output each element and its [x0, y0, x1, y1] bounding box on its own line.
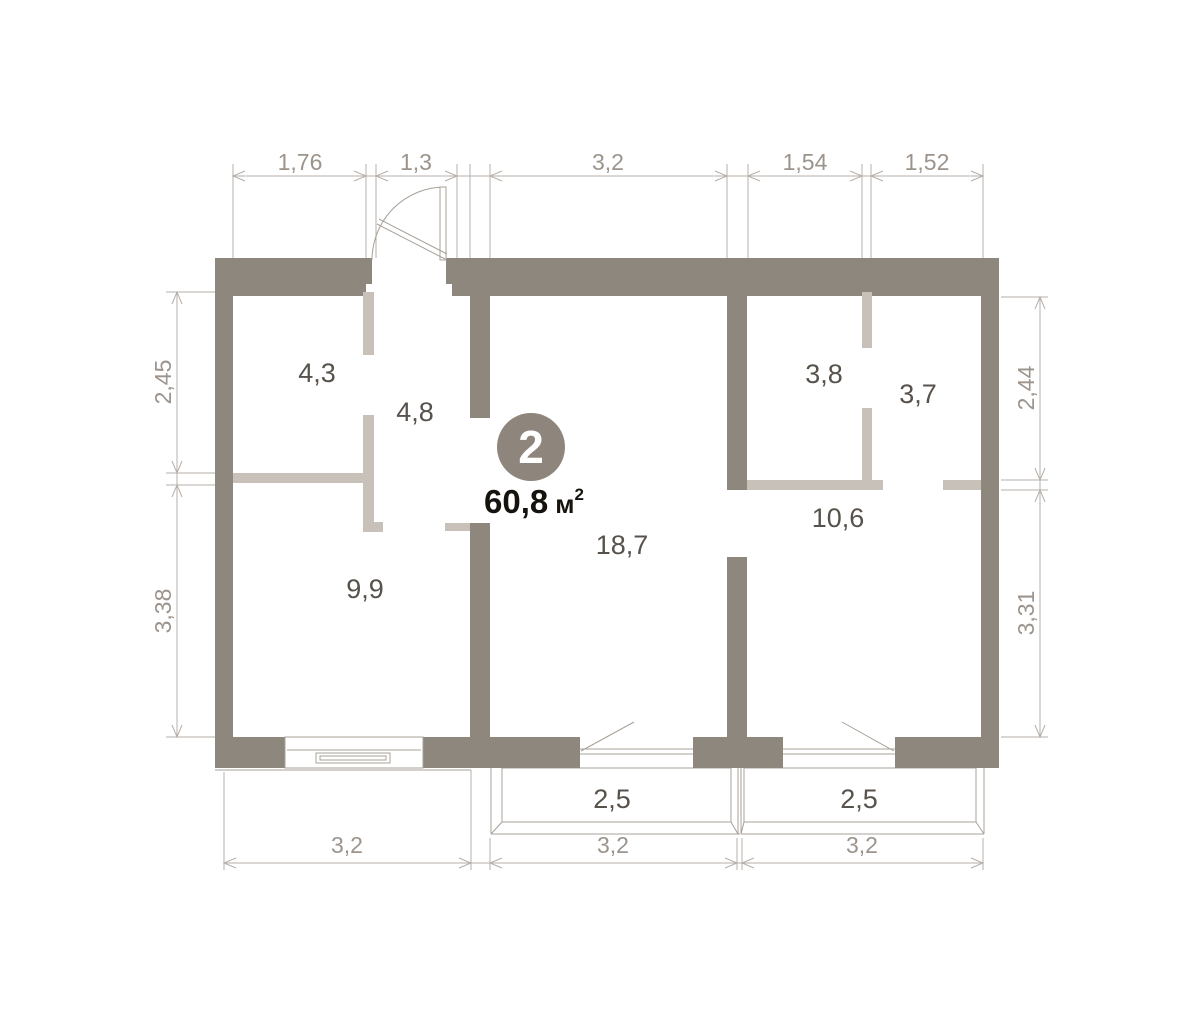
dimensions-top: 1,76 1,3 3,2 1,54 1,52	[233, 149, 983, 258]
wall-bottom-2	[423, 737, 580, 768]
dim-top-5: 1,52	[905, 149, 950, 175]
balcony-door-right	[783, 722, 895, 754]
partition-under-38	[747, 480, 883, 490]
dim-bottom-2: 3,2	[597, 832, 629, 858]
area-label-living-room: 18,7	[596, 530, 649, 560]
total-area-superscript: 2	[574, 485, 583, 504]
window-bottom-left	[285, 737, 423, 768]
partition-room-divider-left	[233, 473, 363, 483]
door-leaf-open	[440, 187, 446, 260]
area-label-bedroom-left: 9,9	[346, 574, 384, 604]
partition-closet-cap	[363, 522, 383, 532]
dim-top-3: 3,2	[592, 149, 624, 175]
wall-hall-living-upper	[470, 292, 490, 418]
partitions	[233, 292, 981, 532]
door-jamb-notch-right	[446, 284, 452, 296]
dimensions-left: 2,45 3,38	[150, 292, 215, 737]
floor-plan-page: 1,76 1,3 3,2 1,54 1,52 2,45 3,38 2,44 3,…	[0, 0, 1200, 1027]
wall-right	[981, 258, 999, 768]
dim-bottom-1: 3,2	[331, 832, 363, 858]
area-label-storage-left: 3,8	[805, 359, 843, 389]
partition-38-37-top	[862, 292, 872, 348]
dim-top-1: 1,76	[278, 149, 323, 175]
unit-badge: 2	[497, 413, 565, 481]
wall-left	[215, 258, 233, 768]
door-swing-arc	[372, 187, 445, 260]
area-label-storage-right: 3,7	[899, 379, 937, 409]
wall-bottom-4	[895, 737, 999, 768]
outer-walls	[215, 258, 999, 768]
dim-left-1: 2,45	[150, 360, 176, 405]
partition-closet-top	[363, 292, 374, 355]
wall-hall-living-lower	[470, 523, 490, 737]
wall-living-right-lower	[727, 557, 747, 768]
area-label-hallway: 4,8	[396, 397, 434, 427]
partition-under-37	[943, 480, 981, 490]
floor-plan-svg: 1,76 1,3 3,2 1,54 1,52 2,45 3,38 2,44 3,…	[0, 0, 1200, 1027]
partition-closet-bottom	[363, 415, 374, 532]
total-area-unit: м	[555, 489, 574, 519]
wall-living-right-upper	[727, 292, 747, 490]
dim-left-2: 3,38	[150, 589, 176, 634]
partition-stub-hall	[445, 523, 470, 531]
entrance-door	[372, 187, 447, 260]
area-label-balcony-left: 2,5	[593, 784, 631, 814]
dim-right-2: 3,31	[1013, 591, 1039, 636]
total-area-value: 60,8	[484, 483, 548, 520]
wall-top-left	[215, 258, 372, 296]
area-label-balcony-right: 2,5	[840, 784, 878, 814]
dim-top-4: 1,54	[783, 149, 828, 175]
total-area: 60,8м2	[484, 483, 584, 520]
wall-bottom-1	[215, 737, 285, 768]
dim-bottom-3: 3,2	[846, 832, 878, 858]
area-label-room-top-left: 4,3	[298, 358, 336, 388]
balcony-door-left	[580, 722, 693, 754]
dim-right-1: 2,44	[1013, 365, 1039, 410]
partition-38-37-bottom	[862, 408, 872, 490]
dim-top-2: 1,3	[400, 149, 432, 175]
wall-top-right	[446, 258, 999, 296]
area-label-bedroom-right: 10,6	[812, 503, 865, 533]
balcony-door-left-leaf	[581, 722, 634, 751]
dimensions-right: 2,44 3,31	[1001, 297, 1048, 737]
balcony-door-right-leaf	[842, 722, 894, 751]
unit-number: 2	[518, 421, 544, 473]
